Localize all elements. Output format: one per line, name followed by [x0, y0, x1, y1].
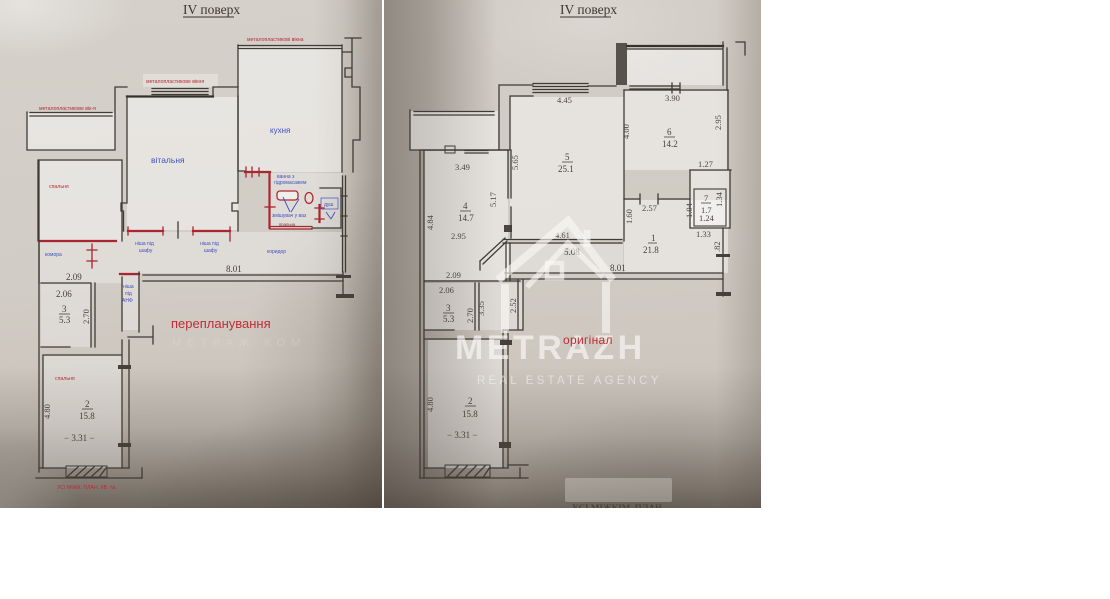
svg-text:− 3.31 −: − 3.31 −: [447, 430, 477, 440]
svg-text:2.57: 2.57: [642, 203, 657, 213]
svg-text:коридор: коридор: [267, 249, 286, 255]
svg-text:4.80: 4.80: [425, 397, 435, 412]
svg-text:2.52: 2.52: [508, 298, 518, 313]
svg-text:2.06: 2.06: [56, 289, 72, 299]
svg-text:2: 2: [85, 399, 90, 409]
svg-text:5.3: 5.3: [443, 314, 455, 324]
svg-text:6: 6: [667, 127, 672, 137]
svg-text:2: 2: [468, 396, 473, 406]
svg-text:5.17: 5.17: [488, 192, 498, 207]
svg-text:спальня: спальня: [49, 184, 69, 190]
svg-text:2.09: 2.09: [446, 270, 461, 280]
svg-text:металопластикове вікня: металопластикове вікня: [146, 79, 204, 85]
svg-text:METRAZH: METRAZH: [455, 329, 646, 367]
svg-text:5.3: 5.3: [59, 315, 71, 325]
svg-text:8.01: 8.01: [610, 263, 626, 273]
svg-text:5: 5: [565, 152, 570, 162]
svg-text:3.35: 3.35: [476, 301, 486, 316]
svg-text:під: під: [125, 291, 132, 297]
svg-text:2.95: 2.95: [713, 115, 723, 130]
svg-text:комора: комора: [45, 252, 62, 258]
svg-text:15.8: 15.8: [79, 411, 95, 421]
svg-text:ніша під: ніша під: [135, 241, 154, 247]
svg-text:REAL ESTATE AGENCY: REAL ESTATE AGENCY: [477, 375, 662, 387]
svg-text:15.8: 15.8: [462, 409, 478, 419]
svg-text:3.49: 3.49: [455, 162, 470, 172]
svg-text:ніша: ніша: [123, 284, 134, 290]
svg-text:1.34: 1.34: [714, 191, 724, 207]
svg-text:3.90: 3.90: [665, 93, 680, 103]
svg-text:кухня: кухня: [270, 126, 290, 135]
svg-text:1.27: 1.27: [698, 159, 713, 169]
svg-text:шафу: шафу: [204, 248, 218, 254]
svg-text:металопластикові вікна: металопластикові вікна: [247, 37, 304, 43]
svg-text:7: 7: [704, 193, 708, 203]
svg-text:спальня: спальня: [55, 376, 75, 382]
svg-text:1.04: 1.04: [684, 202, 694, 218]
svg-text:АНФ: АНФ: [122, 298, 133, 304]
svg-text:IV поверх: IV поверх: [183, 2, 240, 17]
svg-text:2.06: 2.06: [439, 285, 454, 295]
svg-text:3: 3: [62, 304, 67, 314]
svg-text:оригінал: оригінал: [563, 333, 613, 347]
svg-text:4.45: 4.45: [557, 95, 572, 105]
svg-text:перепланування: перепланування: [171, 316, 271, 331]
svg-text:1: 1: [651, 233, 656, 243]
svg-text:1.60: 1.60: [624, 209, 634, 224]
svg-text:1.24: 1.24: [699, 213, 715, 223]
svg-text:4: 4: [463, 201, 468, 211]
svg-text:25.1: 25.1: [558, 164, 574, 174]
svg-text:металопластикове вік-я: металопластикове вік-я: [39, 106, 96, 112]
svg-text:МЕТРАЖ КОМ: МЕТРАЖ КОМ: [172, 337, 306, 349]
svg-text:2.70: 2.70: [465, 308, 475, 323]
svg-text:душ: душ: [324, 202, 333, 208]
svg-text:УСІ МІЖК. ПЛАН. КВ. №: УСІ МІЖК. ПЛАН. КВ. №: [57, 485, 116, 491]
svg-text:УСІ МІЖКІМ. ПЛАН.: УСІ МІЖКІМ. ПЛАН.: [572, 503, 664, 508]
svg-text:− 3.31 −: − 3.31 −: [64, 433, 94, 443]
svg-text:вітальня: вітальня: [151, 155, 185, 165]
svg-text:4.84: 4.84: [425, 214, 435, 230]
svg-text:2.09: 2.09: [66, 272, 82, 282]
svg-text:2.95: 2.95: [451, 231, 466, 241]
svg-text:14.2: 14.2: [662, 139, 678, 149]
svg-text:2.70: 2.70: [81, 309, 91, 324]
svg-text:4.80: 4.80: [42, 404, 52, 419]
svg-text:шафу: шафу: [139, 248, 153, 254]
svg-text:3: 3: [446, 303, 451, 313]
svg-text:1.33: 1.33: [696, 229, 711, 239]
svg-text:21.8: 21.8: [643, 245, 659, 255]
svg-text:4.00: 4.00: [621, 124, 631, 139]
svg-text:гідромасажем: гідромасажем: [274, 180, 307, 186]
svg-text:14.7: 14.7: [458, 213, 474, 223]
svg-text:8.01: 8.01: [226, 264, 242, 274]
svg-text:IV поверх: IV поверх: [560, 2, 617, 17]
svg-text:змішувач у ваз: змішувач у ваз: [272, 213, 307, 219]
svg-text:ніша під: ніша під: [200, 241, 219, 247]
svg-text:.82: .82: [712, 241, 722, 252]
